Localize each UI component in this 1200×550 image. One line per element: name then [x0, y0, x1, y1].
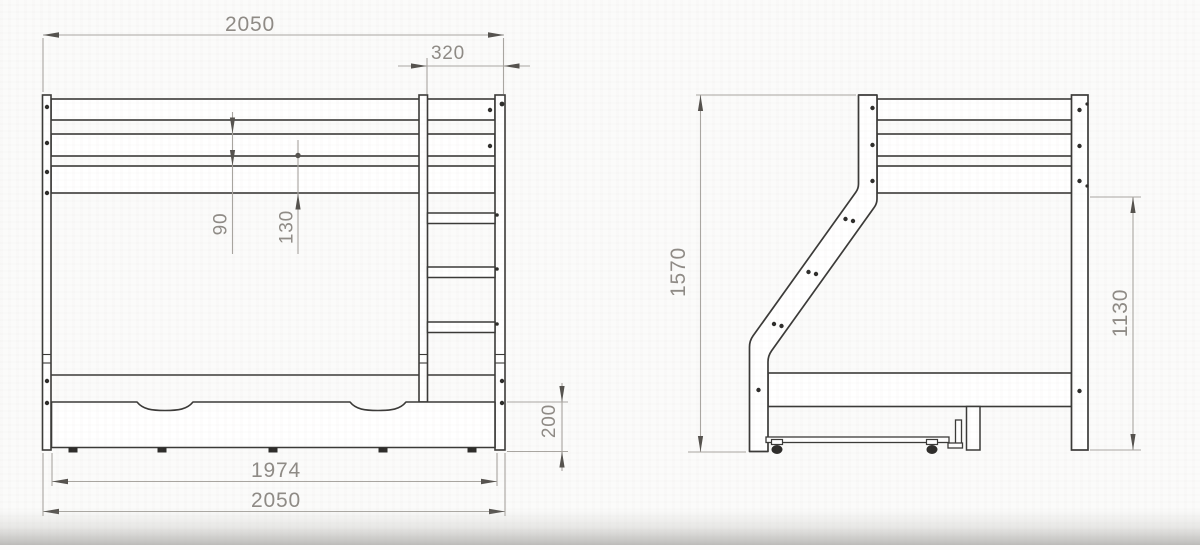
front-upper-rails — [51, 99, 495, 193]
technical-drawing-canvas: 2050 320 90 130 — [0, 0, 1200, 545]
dim-label-overall-height: 1570 — [667, 247, 690, 297]
dim-rail-gap: 130 — [277, 140, 301, 254]
side-support-leg — [967, 407, 981, 451]
ladder-rung — [428, 267, 496, 278]
side-view: 1570 1130 — [667, 95, 1141, 454]
side-rear-post — [1072, 95, 1089, 450]
bunk-bed-drawing: 2050 320 90 130 — [0, 0, 1200, 545]
ladder-rung — [428, 322, 496, 333]
dim-label-clearance-height: 1130 — [1109, 289, 1132, 337]
dim-drawer-height: 200 — [507, 383, 568, 471]
dim-label-width-bottom: 2050 — [251, 489, 301, 512]
dim-label-drawer-height: 200 — [539, 404, 560, 438]
front-left-post — [43, 95, 52, 450]
front-right-post — [495, 95, 505, 450]
dim-label-rail-gap: 130 — [277, 210, 298, 244]
dim-clearance-height: 1130 — [1090, 197, 1141, 450]
dim-drawer-width: 1974 — [52, 453, 497, 486]
dim-label-drawer-width: 1974 — [251, 459, 301, 482]
front-joint-marks — [43, 355, 506, 364]
dim-label-ladder-width: 320 — [431, 43, 465, 64]
dim-ladder-width: 320 — [398, 43, 530, 94]
ladder-rung — [428, 213, 496, 224]
dim-label-width-top: 2050 — [225, 13, 275, 36]
dim-label-guard-rail-gap: 90 — [211, 213, 232, 236]
side-upper-rails — [877, 99, 1072, 193]
front-view: 2050 320 90 130 — [43, 13, 569, 516]
ladder-left-stile — [419, 95, 428, 402]
front-drawer — [52, 402, 496, 448]
side-lower-rail — [768, 373, 1072, 407]
